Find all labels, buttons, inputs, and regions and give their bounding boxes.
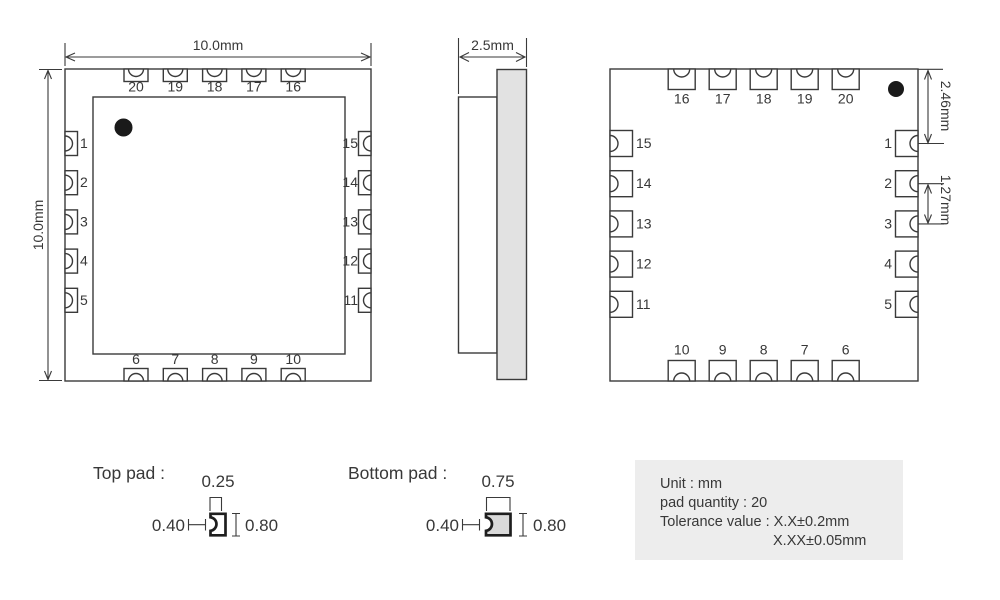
pin-label: 19 [168, 79, 184, 95]
pad [709, 361, 736, 382]
pin-label: 16 [285, 79, 301, 95]
notch-dimension-marks [487, 498, 511, 512]
pin-label: 6 [132, 351, 140, 367]
shield-side [497, 70, 527, 380]
notch-dimension-marks [210, 498, 222, 512]
pin-label: 7 [171, 351, 179, 367]
pin-label: 1 [80, 135, 88, 151]
pin-label: 19 [797, 91, 813, 107]
dim-thickness-label: 2.5mm [471, 37, 514, 53]
pad-length-label: 0.80 [533, 516, 566, 535]
pad [832, 361, 859, 382]
pad [668, 361, 695, 382]
module-body-side [459, 97, 498, 353]
dim-pitch-label: 1.27mm [938, 175, 954, 226]
top-pad-detail: Top pad : 0.25 0.40 0.80 [93, 463, 278, 536]
pin-label: 16 [674, 91, 690, 107]
shield-outline [93, 97, 345, 354]
pin-label: 4 [80, 253, 88, 269]
pin-label: 12 [342, 253, 358, 269]
pad [65, 132, 78, 156]
pad [359, 132, 372, 156]
package-drawing-page: 10.0mm 10.0mm 20191817166789101234515141… [0, 0, 1000, 600]
pin-label: 13 [342, 213, 358, 229]
pad [896, 291, 919, 317]
pad-length-label: 0.80 [245, 516, 278, 535]
pad [896, 211, 919, 237]
pad-width-marks [463, 519, 480, 531]
pad [791, 361, 818, 382]
pad [791, 69, 818, 90]
pad [124, 369, 148, 382]
pad [750, 69, 777, 90]
pad [896, 251, 919, 277]
info-unit: Unit : mm [660, 476, 722, 492]
pad [359, 249, 372, 273]
pin-label: 8 [760, 342, 768, 358]
pin-label: 10 [674, 342, 690, 358]
pad [896, 171, 919, 197]
pin-label: 11 [636, 296, 651, 312]
pin-label: 18 [207, 79, 223, 95]
pin-label: 20 [128, 79, 144, 95]
pin-label: 2 [884, 175, 892, 191]
notch-width-label: 0.75 [481, 472, 514, 491]
pad [359, 171, 372, 195]
pin-label: 9 [250, 351, 258, 367]
pad [65, 249, 78, 273]
notch-width-label: 0.25 [201, 472, 234, 491]
pin-label: 1 [884, 135, 892, 151]
top-pad-title: Top pad : [93, 463, 165, 483]
pad [203, 369, 227, 382]
pin-label: 5 [884, 296, 892, 312]
pad [65, 288, 78, 312]
pad [750, 361, 777, 382]
info-box: Unit : mm pad quantity : 20 Tolerance va… [635, 460, 903, 560]
pin-label: 17 [715, 91, 731, 107]
pad [610, 291, 633, 317]
pin-label: 8 [211, 351, 219, 367]
info-tolerance-1: Tolerance value : X.X±0.2mm [660, 514, 849, 530]
pad [709, 69, 736, 90]
pad [65, 171, 78, 195]
pin-label: 7 [801, 342, 809, 358]
mechanical-drawing: 10.0mm 10.0mm 20191817166789101234515141… [0, 0, 1000, 600]
pad-width-label: 0.40 [152, 516, 185, 535]
pad-length-marks [232, 514, 240, 537]
pin1-indicator-dot [888, 81, 904, 97]
pin-label: 15 [636, 135, 652, 151]
pad [163, 369, 187, 382]
bottom-pad-detail: Bottom pad : 0.75 0.40 0.80 [348, 463, 566, 536]
pad [896, 131, 919, 157]
pin-label: 5 [80, 292, 88, 308]
module-outline [610, 69, 918, 381]
pin-label: 4 [884, 256, 892, 272]
side-view: 2.5mm [459, 37, 527, 380]
bottom-pad-shape [486, 514, 511, 536]
pin-label: 3 [884, 215, 892, 231]
pin-label: 20 [838, 91, 854, 107]
pad [610, 171, 633, 197]
bottom-pad-title: Bottom pad : [348, 463, 447, 483]
pad [610, 131, 633, 157]
pad [610, 211, 633, 237]
pin-label: 14 [636, 175, 652, 191]
pin-label: 13 [636, 215, 652, 231]
pin-label: 10 [285, 351, 301, 367]
pin-label: 6 [842, 342, 850, 358]
pad [65, 210, 78, 234]
top-pad-shape [211, 514, 226, 536]
pad [832, 69, 859, 90]
pin-label: 17 [246, 79, 262, 95]
info-pad-quantity: pad quantity : 20 [660, 495, 767, 511]
pin-label: 2 [80, 174, 88, 190]
pin-label: 12 [636, 256, 652, 272]
dim-height-label: 10.0mm [30, 200, 46, 251]
pad [242, 369, 266, 382]
pin-label: 14 [342, 174, 358, 190]
pad [281, 369, 305, 382]
pad-width-marks [189, 519, 206, 531]
pad [359, 210, 372, 234]
pin-label: 15 [342, 135, 358, 151]
dim-edge-to-pin1-label: 2.46mm [938, 81, 954, 132]
bottom-view: 2.46mm 1.27mm 16171819201098761514131211… [610, 69, 954, 381]
pin-label: 9 [719, 342, 727, 358]
pad [610, 251, 633, 277]
pin-label: 3 [80, 213, 88, 229]
pad-width-label: 0.40 [426, 516, 459, 535]
dim-width-label: 10.0mm [193, 37, 244, 53]
info-tolerance-2: X.XX±0.05mm [773, 533, 866, 549]
pad [359, 288, 372, 312]
top-view: 10.0mm 10.0mm 20191817166789101234515141… [30, 37, 371, 381]
pin-label: 11 [343, 292, 358, 308]
pad [668, 69, 695, 90]
pad-length-marks [519, 514, 527, 537]
pin-label: 18 [756, 91, 772, 107]
pin1-indicator-dot [115, 119, 133, 137]
